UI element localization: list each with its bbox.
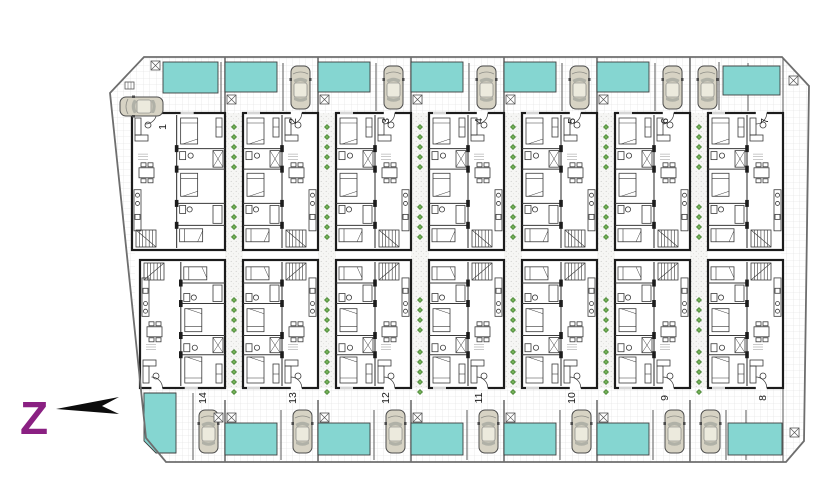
unit-7-house: [708, 111, 783, 250]
unit-7-pool: [723, 66, 780, 95]
unit-label-7: 7: [759, 118, 771, 124]
unit-4-car: [476, 66, 498, 109]
unit-2-house: [243, 111, 318, 250]
unit-5-car: [569, 66, 591, 109]
north-compass: Z: [20, 392, 119, 444]
unit-1-house: [132, 111, 225, 250]
unit-13-car: [292, 410, 314, 453]
unit-6-house: [615, 111, 690, 250]
utility-box-icon: [599, 413, 608, 422]
utility-box-icon: [506, 95, 515, 104]
unit-6-car: [662, 66, 684, 109]
floor-plan-canvas: 1234567891011121314 Z: [0, 0, 840, 497]
north-letter: Z: [20, 392, 48, 444]
unit-label-3: 3: [380, 118, 392, 124]
unit-11-car: [478, 410, 500, 453]
unit-12-house: [336, 260, 411, 390]
north-arrow-icon: [56, 397, 119, 414]
utility-box-icon: [413, 95, 422, 104]
unit-9-car: [664, 410, 686, 453]
unit-9-pool: [597, 423, 649, 455]
unit-2-car: [290, 66, 312, 109]
unit-8-car: [700, 410, 722, 453]
utility-box-icon: [413, 413, 422, 422]
unit-label-2: 2: [287, 118, 299, 124]
utility-box-icon: [320, 413, 329, 422]
utility-box-icon: [214, 413, 223, 422]
unit-14-house: [140, 260, 225, 390]
unit-label-9: 9: [659, 395, 671, 401]
unit-7-car: [697, 66, 719, 109]
utility-box-icon: [599, 95, 608, 104]
unit-13-house: [243, 260, 318, 390]
unit-4-house: [429, 111, 504, 250]
unit-13-pool: [225, 423, 277, 455]
unit-6-pool: [597, 62, 649, 92]
utility-box-icon: [151, 61, 160, 70]
unit-label-4: 4: [473, 118, 485, 124]
unit-9-house: [615, 260, 690, 390]
unit-3-car: [383, 66, 405, 109]
utility-box-icon: [227, 95, 236, 104]
unit-10-car: [571, 410, 593, 453]
utility-box-icon: [790, 428, 799, 437]
site-plan-svg: 1234567891011121314 Z: [0, 0, 840, 497]
unit-label-12: 12: [380, 392, 392, 404]
unit-5-pool: [504, 62, 556, 92]
unit-3-house: [336, 111, 411, 250]
unit-label-8: 8: [757, 395, 769, 401]
unit-10-pool: [504, 423, 556, 455]
unit-3-pool: [318, 62, 370, 92]
unit-label-5: 5: [566, 118, 578, 124]
unit-2-pool: [225, 62, 277, 92]
unit-label-1: 1: [157, 124, 169, 130]
unit-14-pool: [144, 393, 176, 453]
unit-label-10: 10: [566, 392, 578, 404]
unit-12-pool: [318, 423, 370, 455]
unit-12-car: [385, 410, 407, 453]
utility-box-icon: [320, 95, 329, 104]
unit-4-pool: [411, 62, 463, 92]
unit-1-car: [120, 96, 163, 118]
plan-layers: 1234567891011121314: [105, 55, 811, 464]
utility-box-icon: [789, 76, 798, 85]
unit-label-13: 13: [287, 392, 299, 404]
unit-11-pool: [411, 423, 463, 455]
unit-label-14: 14: [197, 392, 209, 404]
unit-1-pool: [163, 62, 218, 93]
unit-5-house: [522, 111, 597, 250]
unit-8-pool: [728, 423, 782, 455]
utility-box-icon: [227, 413, 236, 422]
unit-11-house: [429, 260, 504, 390]
unit-label-11: 11: [473, 392, 485, 403]
utility-box-icon: [506, 413, 515, 422]
unit-8-house: [708, 260, 783, 390]
unit-label-6: 6: [659, 118, 671, 124]
meter-box: [125, 82, 134, 89]
unit-10-house: [522, 260, 597, 390]
